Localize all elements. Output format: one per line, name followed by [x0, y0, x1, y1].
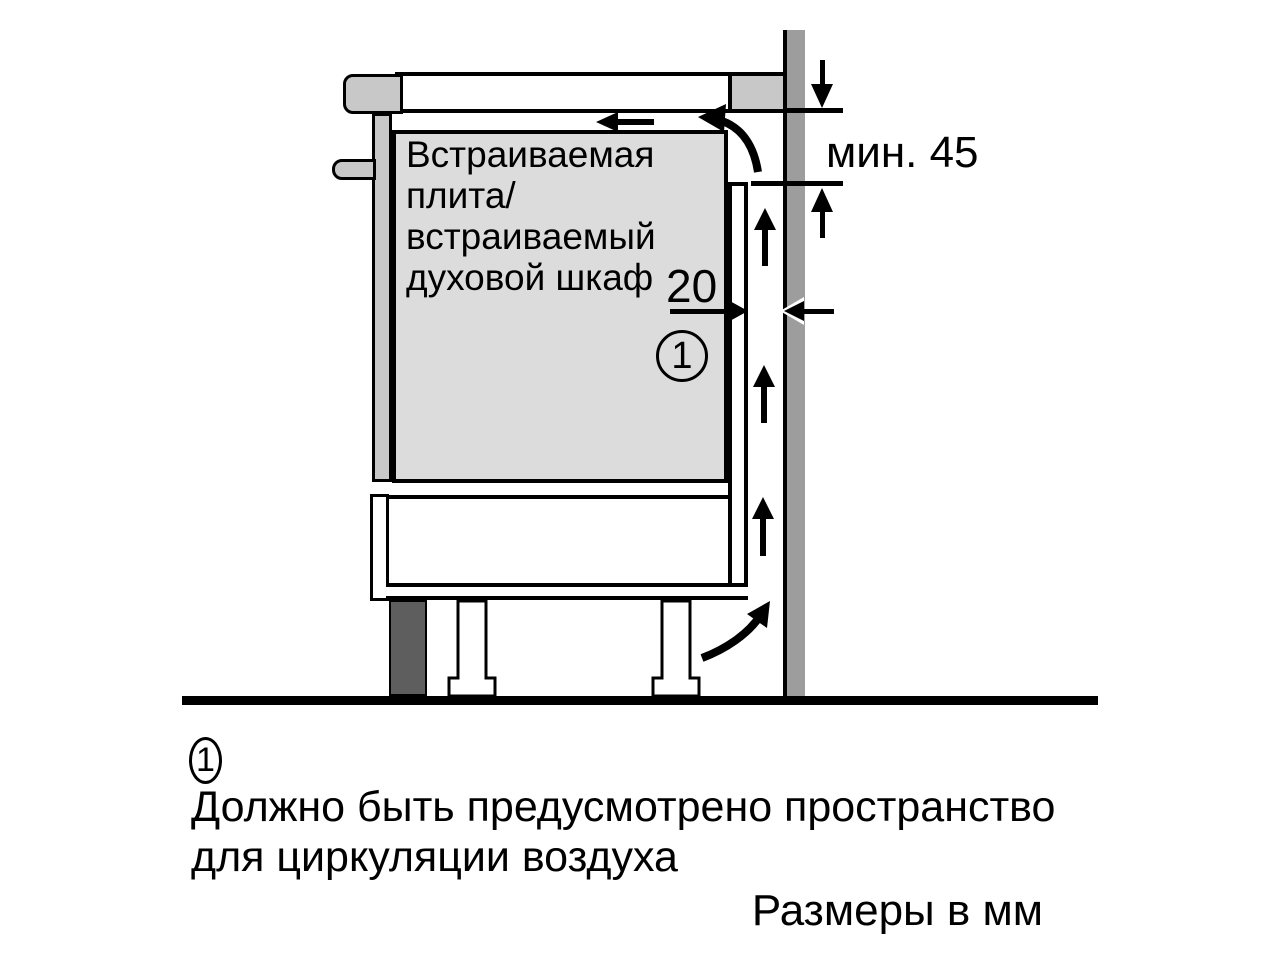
min-clearance-label: мин. 45 [826, 131, 979, 175]
wall [783, 30, 805, 698]
appliance-label: Встраиваемая плита/ встраиваемый духовой… [406, 134, 706, 298]
dim-20-left-arrow-shaft-icon [802, 309, 834, 314]
hob-edge-cap [343, 74, 403, 114]
footnote-1-number: 1 [196, 741, 215, 780]
airflow-up-arrow-bottom-icon [752, 497, 774, 519]
cabinet-bottom-shelf [386, 583, 748, 600]
airflow-up-arrow-middle-icon [753, 365, 775, 387]
airflow-up-arrow-middle-shaft-icon [761, 385, 767, 423]
callout-1-number: 1 [671, 335, 692, 378]
dim-45-up-arrow-icon [811, 188, 833, 212]
callout-1-badge: 1 [656, 330, 708, 382]
cabinet-leg-left [449, 601, 495, 696]
airflow-up-arrow-bottom-shaft-icon [760, 517, 766, 556]
footnote-text: Должно быть предусмотрено пространство д… [191, 782, 1091, 882]
countertop [395, 72, 783, 113]
cabinet-back-panel [728, 182, 748, 600]
footnote-1-badge: 1 [189, 737, 222, 784]
airflow-left-arrow-icon [596, 112, 618, 132]
airflow-curve-bottom-head-icon [747, 601, 770, 628]
dim-45-upper-line [783, 108, 843, 113]
plinth-panel [389, 600, 427, 696]
compartment-top-line [388, 495, 748, 499]
airflow-left-arrow-shaft-icon [616, 119, 654, 125]
airflow-up-arrow-top-icon [754, 208, 776, 230]
countertop-batten [728, 76, 783, 109]
units-note: Размеры в мм [677, 886, 1043, 936]
cabinet-leg-right [653, 601, 699, 696]
dim-20-right-arrow-icon [728, 300, 748, 322]
installation-diagram: Встраиваемая плита/ встраиваемый духовой… [0, 0, 1280, 960]
airflow-up-arrow-top-shaft-icon [762, 228, 768, 266]
gap-dimension-label: 20 [666, 263, 717, 309]
dim-45-up-arrow-shaft-icon [820, 210, 825, 238]
dim-20-left-arrow-icon [784, 301, 804, 321]
dim-45-lower-line [751, 181, 843, 186]
floor-line [182, 696, 1098, 705]
door-handle [332, 159, 376, 180]
dim-45-down-arrow-icon [811, 84, 833, 108]
airflow-curve-bottom-icon [702, 616, 760, 658]
